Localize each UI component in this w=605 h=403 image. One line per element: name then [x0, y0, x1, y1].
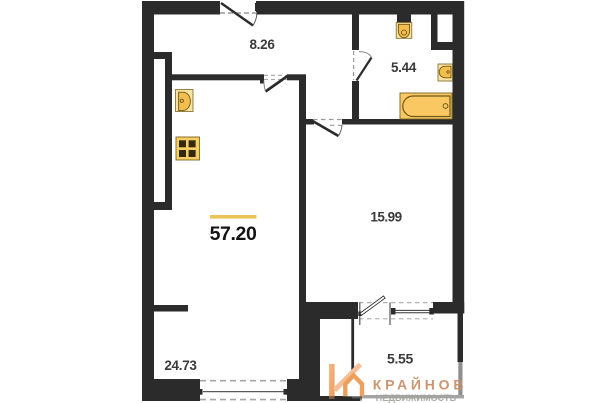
- svg-text:НЕДВИЖИМОСТЬ: НЕДВИЖИМОСТЬ: [376, 393, 457, 403]
- svg-text:8.26: 8.26: [249, 37, 275, 52]
- svg-text:КРАЙНОВ: КРАЙНОВ: [373, 376, 468, 393]
- svg-text:5.55: 5.55: [387, 350, 414, 366]
- svg-text:57.20: 57.20: [210, 223, 257, 245]
- svg-text:5.44: 5.44: [391, 60, 417, 75]
- svg-text:24.73: 24.73: [164, 358, 197, 373]
- svg-text:15.99: 15.99: [370, 209, 401, 224]
